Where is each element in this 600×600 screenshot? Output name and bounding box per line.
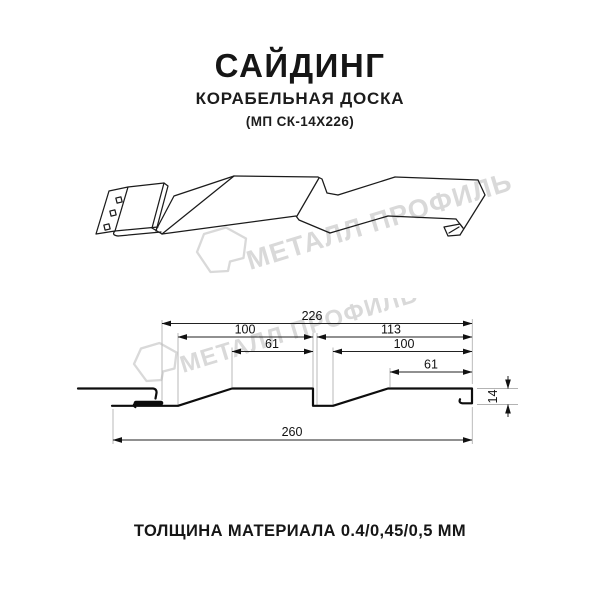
dim-61-right: 61 bbox=[424, 358, 438, 372]
dim-226: 226 bbox=[302, 309, 323, 323]
header: САЙДИНГ КОРАБЕЛЬНАЯ ДОСКА (МП СК-14Х226) bbox=[0, 49, 600, 129]
dim-14: 14 bbox=[486, 390, 500, 404]
dim-100-right: 100 bbox=[394, 337, 415, 351]
watermark: МЕТАЛЛ ПРОФИЛЬ bbox=[197, 166, 512, 275]
dim-113: 113 bbox=[381, 323, 401, 337]
thickness-note: ТОЛЩИНА МАТЕРИАЛА 0.4/0,45/0,5 ММ bbox=[0, 522, 600, 541]
watermark-text: МЕТАЛЛ ПРОФИЛЬ bbox=[177, 298, 421, 379]
product-drawing-page: САЙДИНГ КОРАБЕЛЬНАЯ ДОСКА (МП СК-14Х226)… bbox=[0, 0, 600, 600]
page-title: САЙДИНГ bbox=[0, 49, 600, 83]
metall-profil-logo-icon bbox=[134, 343, 177, 381]
dim-260: 260 bbox=[282, 425, 303, 439]
product-code: (МП СК-14Х226) bbox=[0, 114, 600, 129]
dim-100-left: 100 bbox=[235, 323, 256, 337]
profile-outline bbox=[78, 389, 472, 408]
metall-profil-logo-icon bbox=[197, 228, 246, 273]
profile-3d-drawing: МЕТАЛЛ ПРОФИЛЬ bbox=[78, 146, 512, 284]
dim-61-left: 61 bbox=[265, 337, 279, 351]
cross-section-drawing: МЕТАЛЛ ПРОФИЛЬ 226 bbox=[60, 298, 530, 458]
page-subtitle: КОРАБЕЛЬНАЯ ДОСКА bbox=[0, 89, 600, 109]
